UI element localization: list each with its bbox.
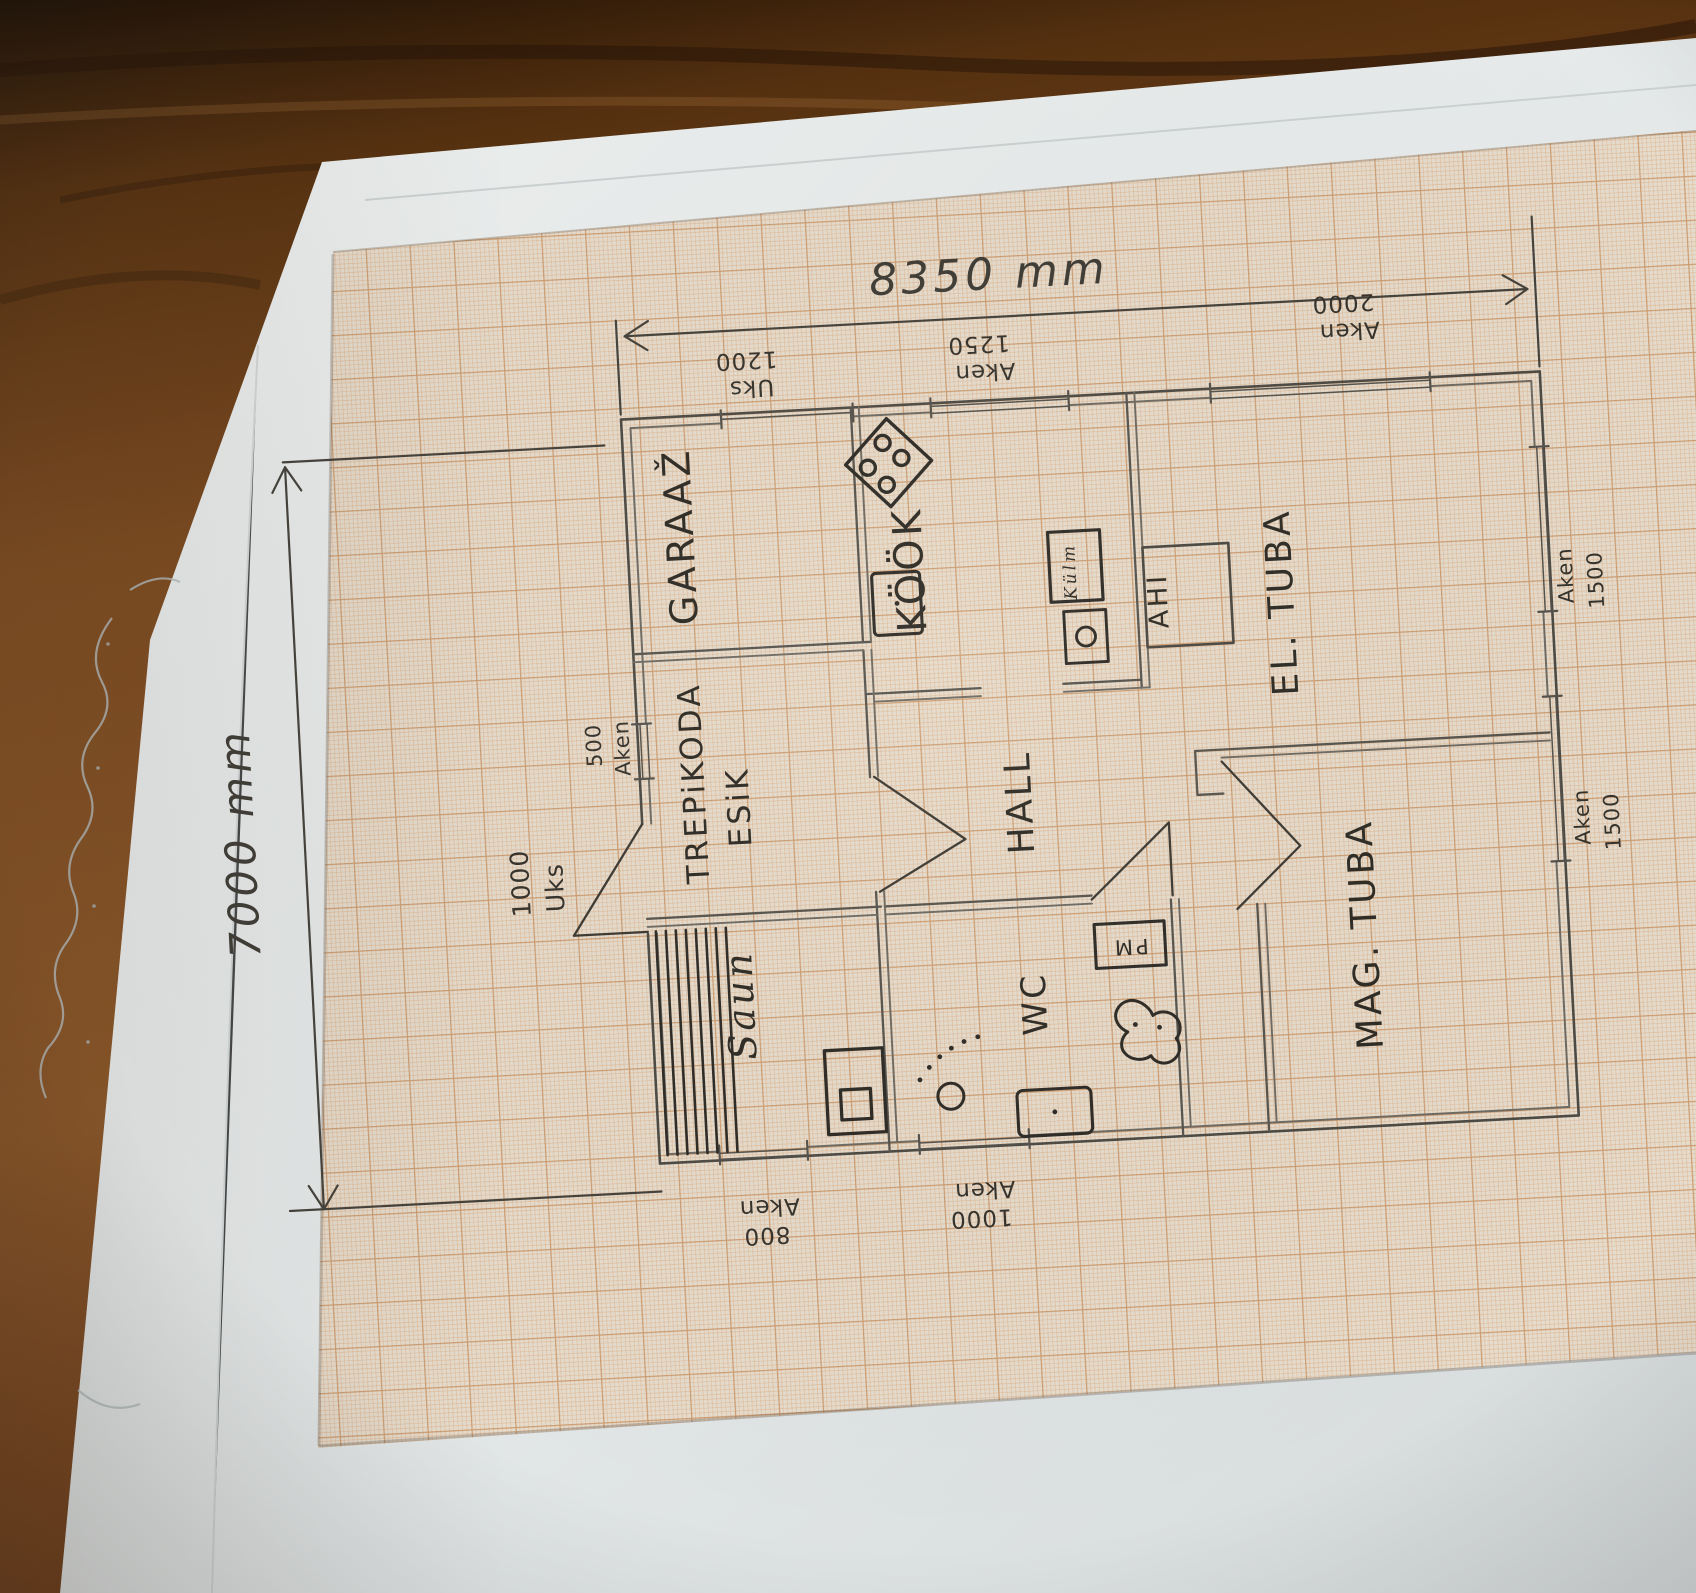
photo-of-floor-plan-sketch: 8350 mm 7000 mm <box>0 0 1696 1593</box>
side-shading <box>0 0 1696 1593</box>
